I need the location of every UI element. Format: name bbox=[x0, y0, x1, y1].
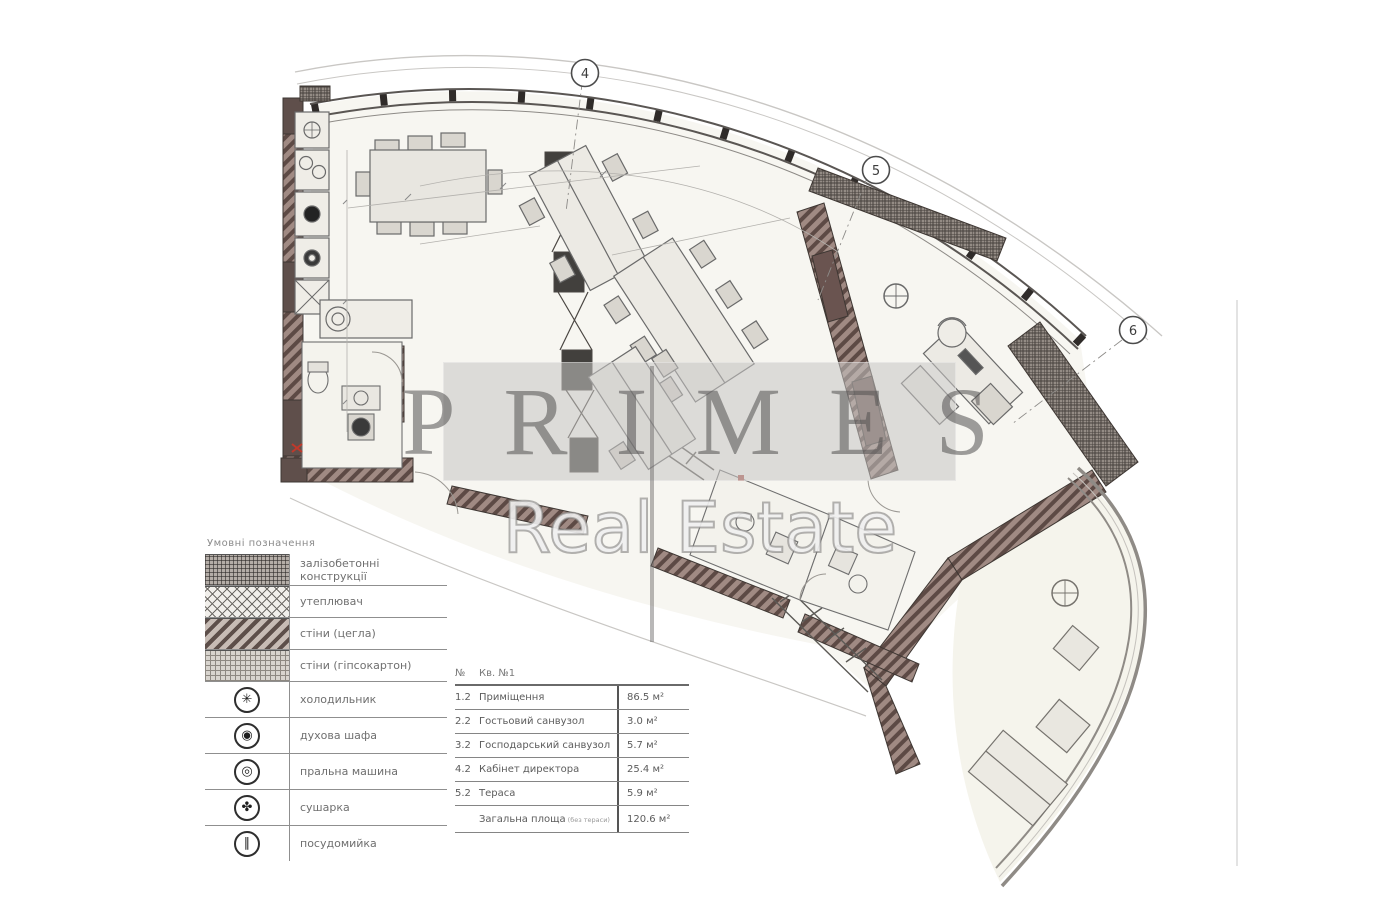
concrete-hatch-swatch bbox=[205, 554, 289, 585]
col-header-name: Кв. №1 bbox=[479, 668, 617, 679]
legend-title: Умовні позначення bbox=[207, 538, 447, 549]
legend-row-insulation: утеплювач bbox=[205, 586, 447, 618]
col-header-area bbox=[617, 663, 689, 684]
total-area: 120.6 м² bbox=[617, 806, 689, 832]
row-area: 3.0 м² bbox=[617, 710, 689, 733]
watermark-real-estate-text: Real Estate bbox=[430, 486, 970, 570]
grid-bubble-5-label: 5 bbox=[872, 164, 880, 179]
row-no: 1.2 bbox=[455, 692, 479, 703]
dishwasher-icon: ∥ bbox=[234, 831, 260, 857]
legend-row-brick: стіни (цегла) bbox=[205, 618, 447, 650]
table-row: 1.2 Приміщення 86.5 м² bbox=[455, 686, 689, 710]
drywall-hatch-swatch bbox=[205, 650, 289, 681]
screenshot-root: 4 5 6 PRIMES Real Estate Умовні позначен… bbox=[0, 0, 1400, 921]
row-no: 4.2 bbox=[455, 764, 479, 775]
watermark-primes-text: PRIMES bbox=[362, 374, 1037, 470]
legend-label: стіни (цегла) bbox=[290, 627, 447, 640]
room-explication-table: № Кв. №1 1.2 Приміщення 86.5 м² 2.2 Гост… bbox=[455, 663, 689, 833]
legend-label: посудомийка bbox=[290, 837, 447, 850]
row-area: 25.4 м² bbox=[617, 758, 689, 781]
legend-label: утеплювач bbox=[290, 595, 447, 608]
washing-machine-icon: ◎ bbox=[234, 759, 260, 785]
legend-label: холодильник bbox=[290, 693, 447, 706]
legend-label: залізобетонні конструкції bbox=[290, 557, 447, 583]
refrigerator-icon: ✳ bbox=[234, 687, 260, 713]
grid-bubble-4-label: 4 bbox=[581, 67, 589, 82]
table-row: 2.2 Гостьовий санвузол 3.0 м² bbox=[455, 710, 689, 734]
oven-icon: ◉ bbox=[234, 723, 260, 749]
row-no: 3.2 bbox=[455, 740, 479, 751]
legend-row-washing-machine: ◎ пральна машина bbox=[205, 754, 447, 790]
table-total-row: Загальна площа(без тераси) 120.6 м² bbox=[455, 806, 689, 833]
total-note: (без тераси) bbox=[568, 816, 610, 824]
row-area: 86.5 м² bbox=[617, 686, 689, 709]
legend-row-oven: ◉ духова шафа bbox=[205, 718, 447, 754]
total-label: Загальна площа bbox=[479, 814, 566, 825]
photo-edge-line bbox=[1236, 300, 1238, 866]
row-no: 5.2 bbox=[455, 788, 479, 799]
row-name: Гостьовий санвузол bbox=[479, 716, 617, 727]
table-body: 1.2 Приміщення 86.5 м² 2.2 Гостьовий сан… bbox=[455, 686, 689, 833]
legend-row-refrigerator: ✳ холодильник bbox=[205, 682, 447, 718]
insulation-hatch-swatch bbox=[205, 586, 289, 617]
legend-label: сушарка bbox=[290, 801, 447, 814]
table-header-row: № Кв. №1 bbox=[455, 663, 689, 686]
table-row: 3.2 Господарський санвузол 5.7 м² bbox=[455, 734, 689, 758]
row-area: 5.9 м² bbox=[617, 782, 689, 805]
row-name: Приміщення bbox=[479, 692, 617, 703]
row-name: Тераса bbox=[479, 788, 617, 799]
legend-label: стіни (гіпсокартон) bbox=[290, 659, 447, 672]
col-header-no: № bbox=[455, 668, 479, 679]
legend-label: пральна машина bbox=[290, 765, 447, 778]
legend-row-dishwasher: ∥ посудомийка bbox=[205, 826, 447, 861]
legend: Умовні позначення залізобетонні конструк… bbox=[205, 538, 447, 861]
row-area: 5.7 м² bbox=[617, 734, 689, 757]
row-name: Господарський санвузол bbox=[479, 740, 617, 751]
legend-row-concrete: залізобетонні конструкції bbox=[205, 554, 447, 586]
total-label-cell: Загальна площа(без тераси) bbox=[479, 814, 617, 825]
legend-row-drywall: стіни (гіпсокартон) bbox=[205, 650, 447, 682]
legend-row-dryer: ✤ сушарка bbox=[205, 790, 447, 826]
grid-bubble-6-label: 6 bbox=[1129, 324, 1137, 339]
legend-label: духова шафа bbox=[290, 729, 447, 742]
table-row: 5.2 Тераса 5.9 м² bbox=[455, 782, 689, 806]
dryer-icon: ✤ bbox=[234, 795, 260, 821]
table-row: 4.2 Кабінет директора 25.4 м² bbox=[455, 758, 689, 782]
row-no: 2.2 bbox=[455, 716, 479, 727]
watermark-band: PRIMES bbox=[443, 362, 956, 481]
row-name: Кабінет директора bbox=[479, 764, 617, 775]
brick-hatch-swatch bbox=[205, 618, 289, 649]
